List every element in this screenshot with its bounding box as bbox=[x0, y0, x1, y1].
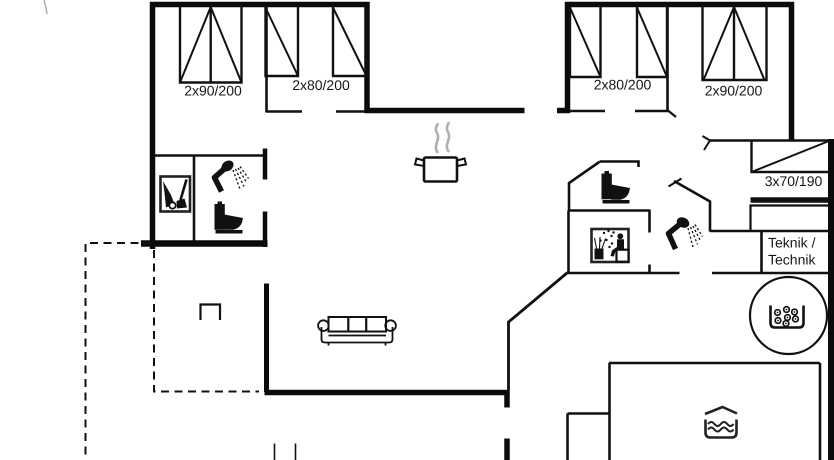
svg-text:2x80/200: 2x80/200 bbox=[594, 77, 652, 93]
svg-text:Teknik /: Teknik / bbox=[768, 235, 816, 251]
svg-text:Technik: Technik bbox=[768, 252, 816, 268]
svg-text:3x70/190: 3x70/190 bbox=[765, 173, 823, 189]
svg-text:2x90/200: 2x90/200 bbox=[705, 83, 763, 99]
svg-text:2x90/200: 2x90/200 bbox=[184, 83, 242, 99]
svg-text:2x80/200: 2x80/200 bbox=[292, 77, 350, 93]
